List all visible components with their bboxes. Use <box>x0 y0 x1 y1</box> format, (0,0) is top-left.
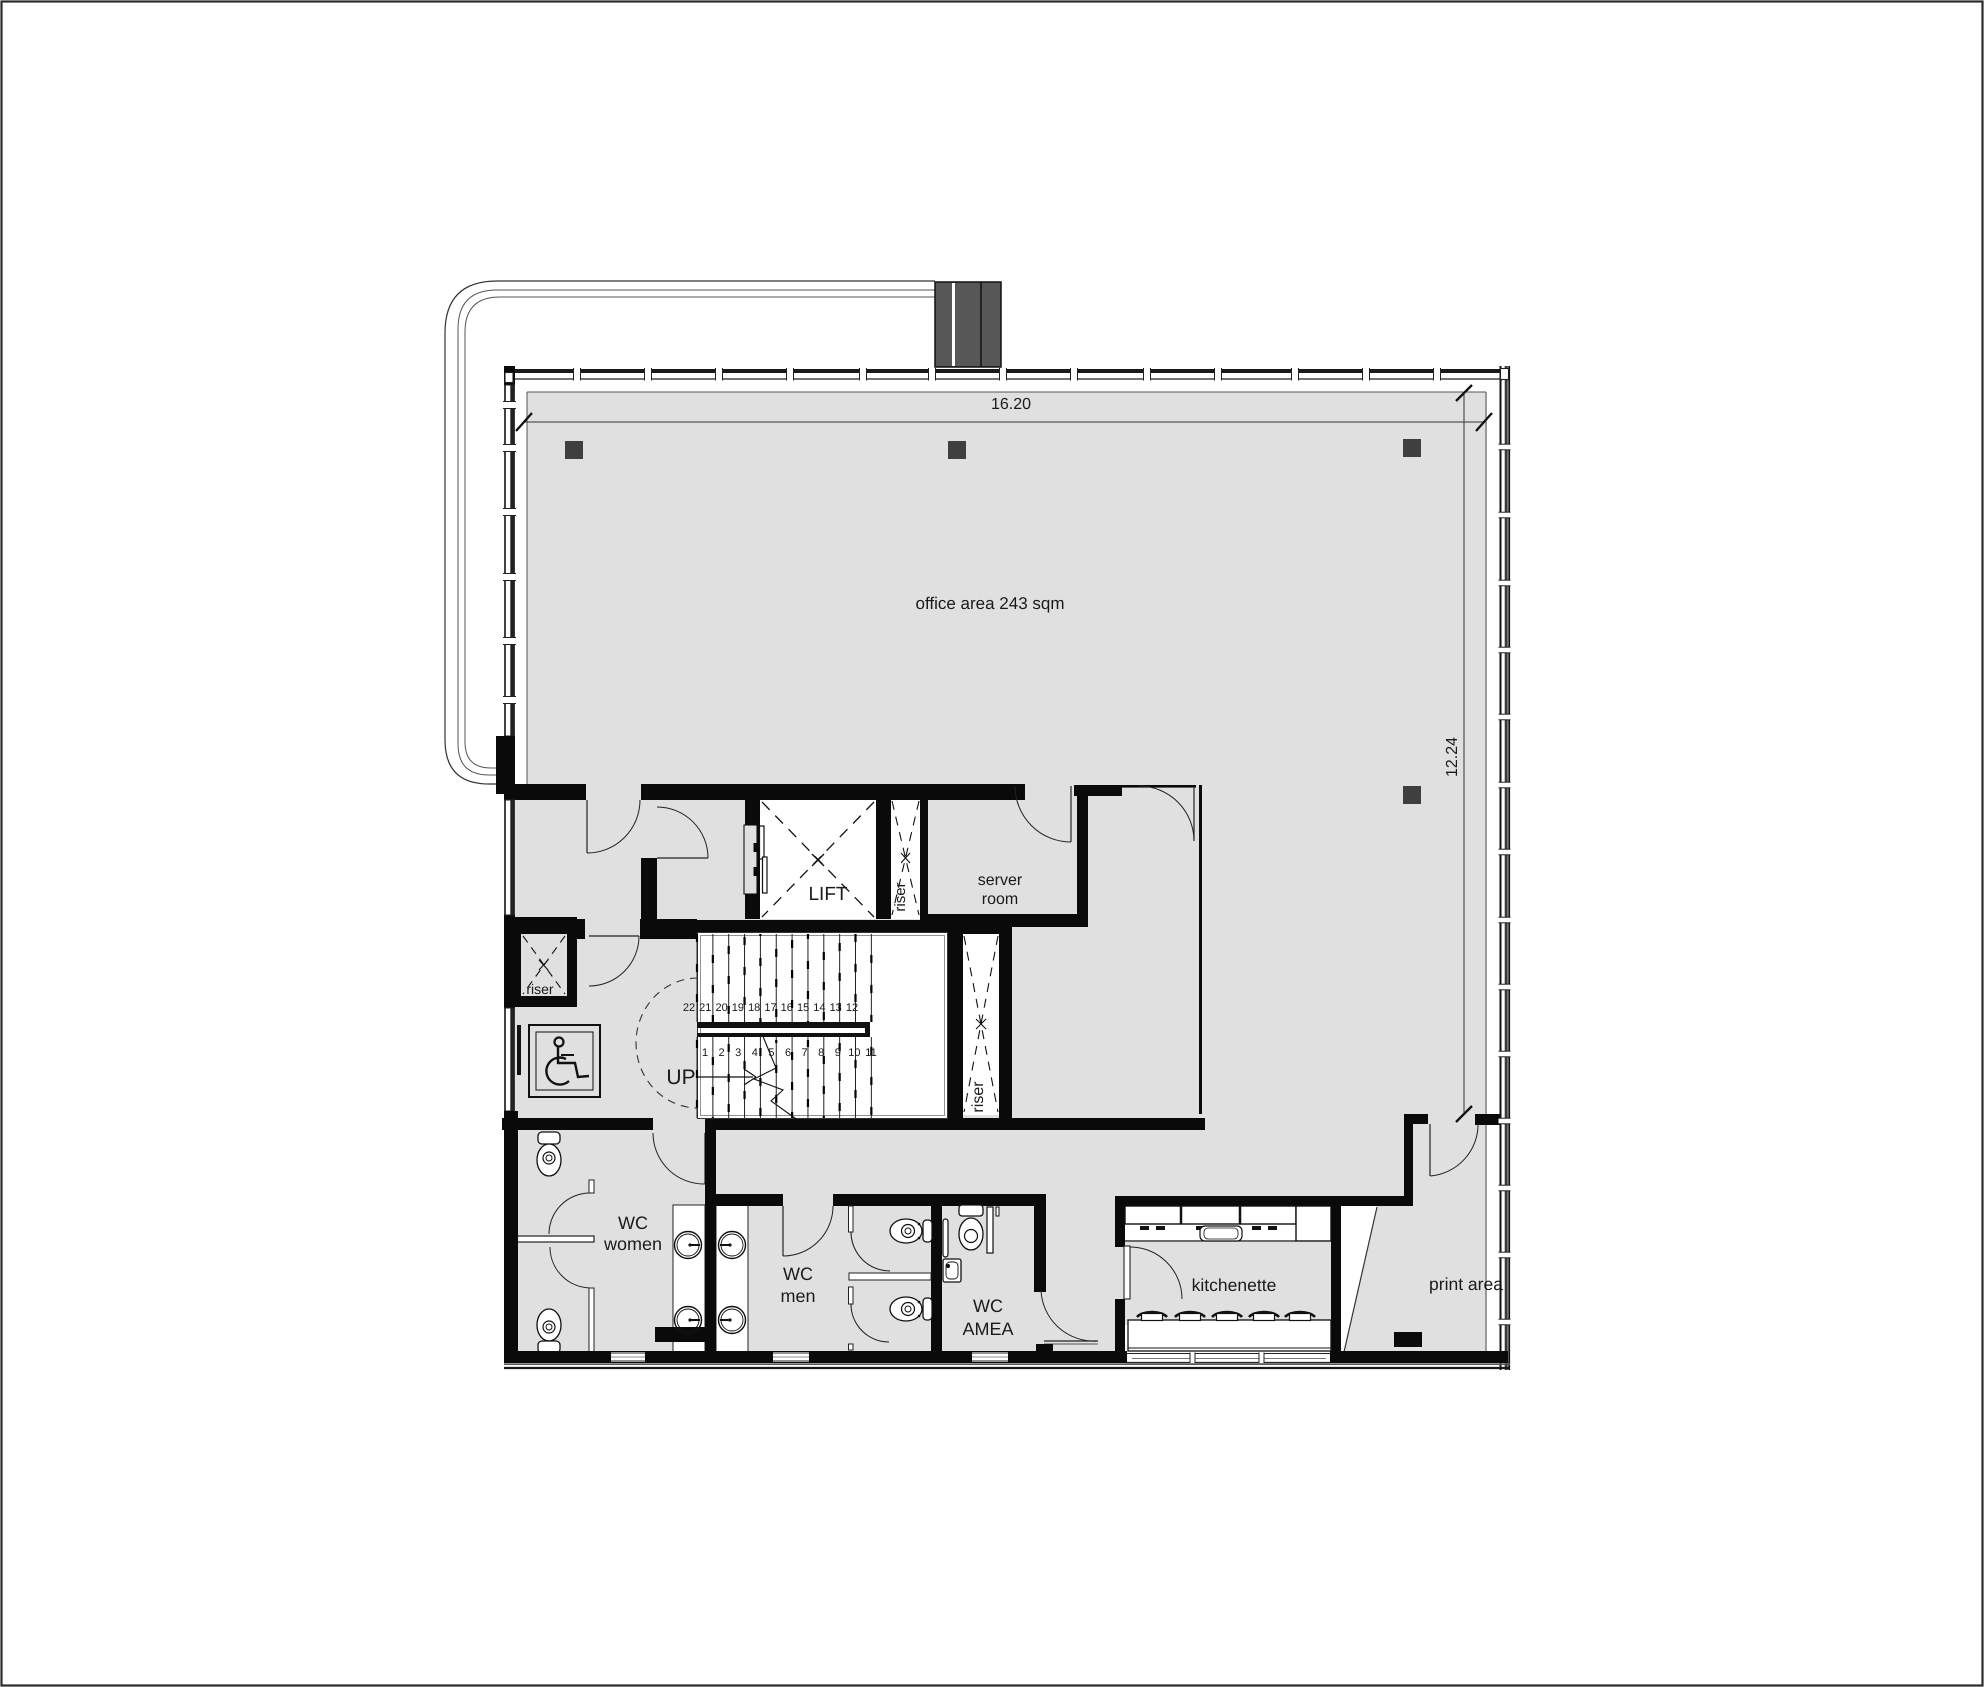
svg-text:1: 1 <box>702 1047 708 1059</box>
svg-text:16.20: 16.20 <box>991 396 1031 413</box>
svg-text:riser: riser <box>526 981 554 997</box>
svg-text:2: 2 <box>719 1047 725 1059</box>
svg-text:6: 6 <box>785 1047 791 1059</box>
svg-text:21: 21 <box>699 1002 711 1014</box>
svg-text:men: men <box>780 1286 815 1306</box>
svg-text:WC: WC <box>618 1213 648 1233</box>
svg-text:UP: UP <box>666 1066 695 1089</box>
svg-text:WC: WC <box>783 1264 813 1284</box>
svg-text:13: 13 <box>830 1002 842 1014</box>
svg-text:19: 19 <box>732 1002 744 1014</box>
svg-text:12: 12 <box>846 1002 858 1014</box>
svg-text:AMEA: AMEA <box>962 1319 1013 1339</box>
svg-text:room: room <box>982 891 1018 908</box>
svg-text:print area: print area <box>1429 1274 1503 1294</box>
svg-text:15: 15 <box>797 1002 809 1014</box>
svg-text:riser: riser <box>970 1081 987 1113</box>
svg-text:20: 20 <box>715 1002 727 1014</box>
svg-text:16: 16 <box>781 1002 793 1014</box>
svg-text:kitchenette: kitchenette <box>1192 1275 1277 1295</box>
svg-text:10: 10 <box>848 1047 860 1059</box>
svg-text:11: 11 <box>865 1047 876 1059</box>
svg-text:server: server <box>978 872 1023 889</box>
svg-text:22: 22 <box>683 1002 695 1014</box>
svg-text:8: 8 <box>818 1047 824 1059</box>
svg-text:3: 3 <box>735 1047 741 1059</box>
svg-text:office area 243 sqm: office area 243 sqm <box>916 594 1065 613</box>
svg-text:7: 7 <box>802 1047 808 1059</box>
svg-text:12.24: 12.24 <box>1444 737 1461 777</box>
svg-text:WC: WC <box>973 1296 1003 1316</box>
svg-text:women: women <box>603 1234 662 1254</box>
svg-text:riser: riser <box>892 882 909 911</box>
svg-text:4: 4 <box>752 1047 758 1059</box>
svg-text:18: 18 <box>748 1002 760 1014</box>
svg-text:14: 14 <box>813 1002 825 1014</box>
svg-text:17: 17 <box>764 1002 776 1014</box>
svg-text:LIFT: LIFT <box>808 884 847 905</box>
svg-text:9: 9 <box>835 1047 841 1059</box>
